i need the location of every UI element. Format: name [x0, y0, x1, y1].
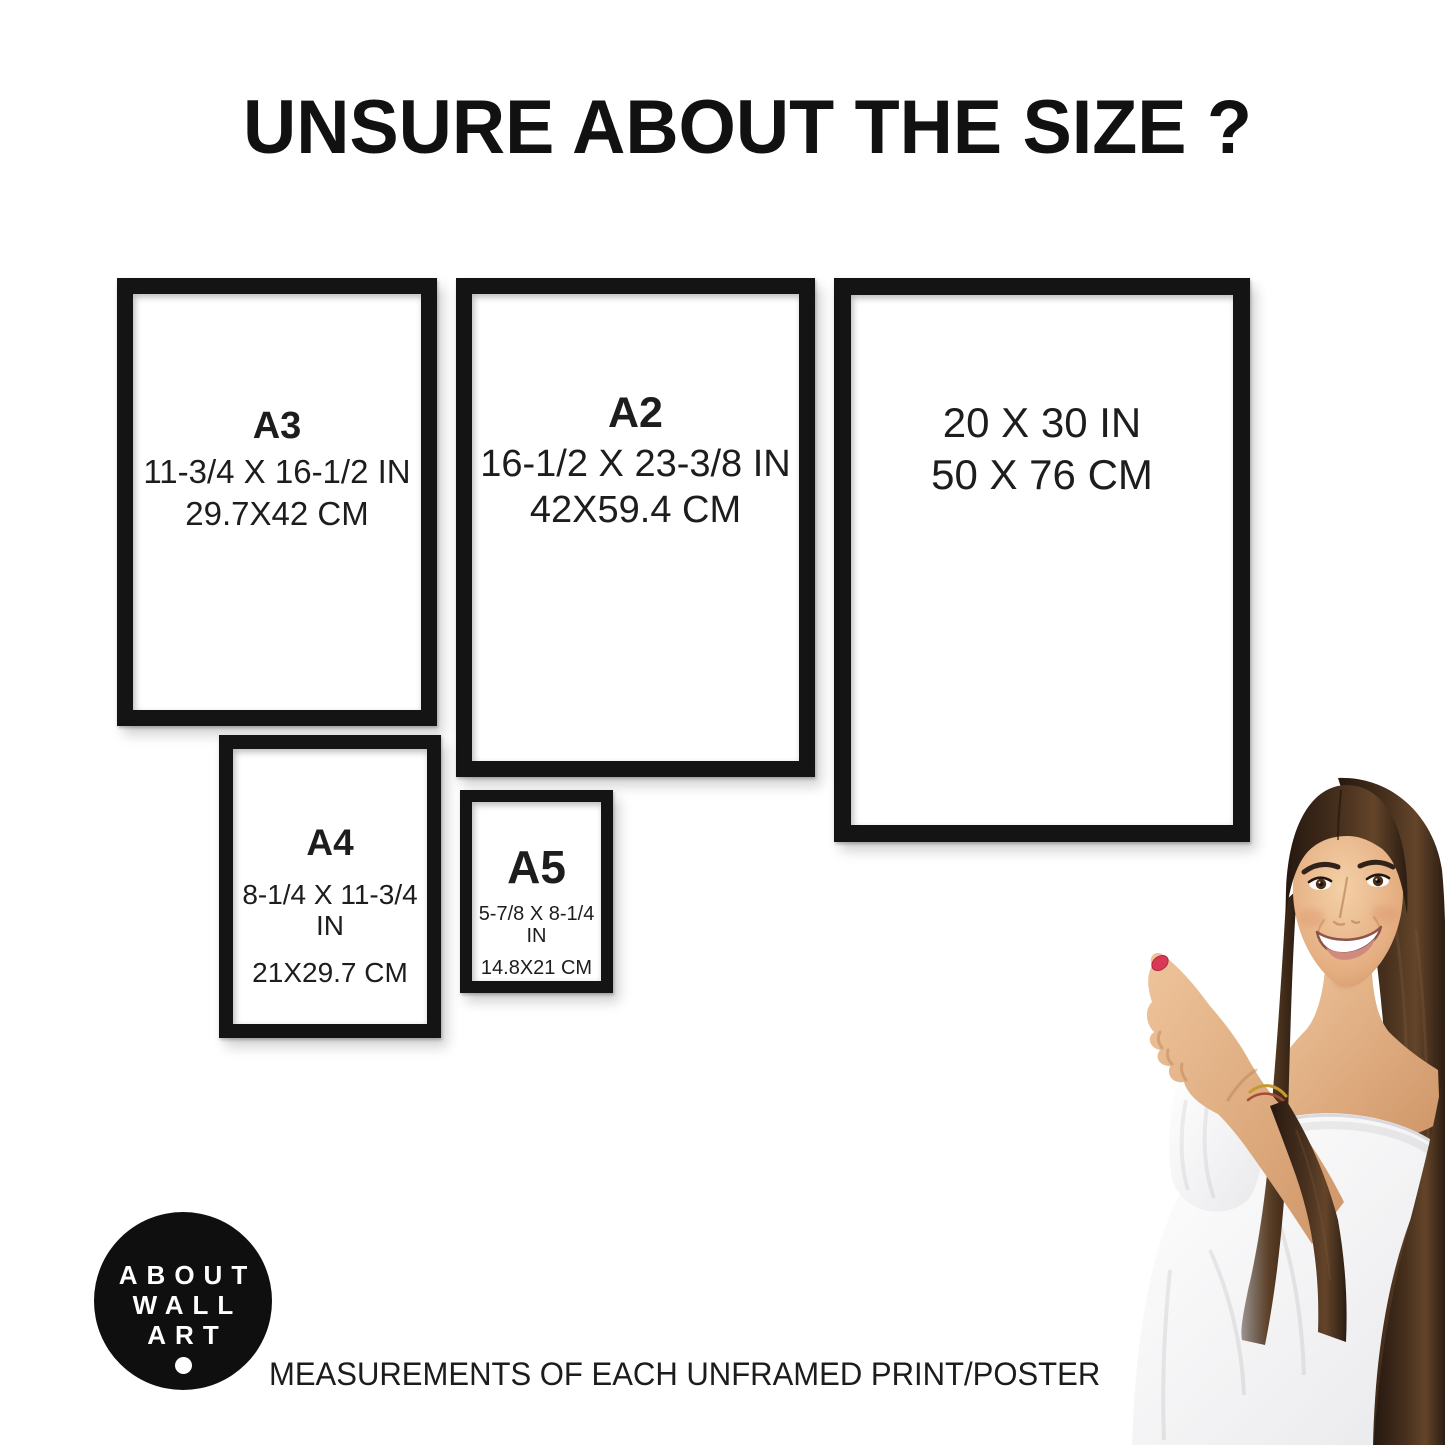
frame-a3-size-cm: 29.7X42 CM [143, 493, 410, 535]
frame-a2: A2 16-1/2 X 23-3/8 IN 42X59.4 CM [456, 278, 815, 777]
frame-a4: A4 8-1/4 X 11-3/4 IN 21X29.7 CM [219, 735, 441, 1038]
frame-20x30-size-cm: 50 X 76 CM [931, 449, 1153, 501]
frame-a2-label: A2 [480, 386, 791, 441]
frame-a4-size-in: 8-1/4 X 11-3/4 IN [233, 880, 427, 942]
logo-dot [175, 1357, 192, 1374]
frame-a2-mat: A2 16-1/2 X 23-3/8 IN 42X59.4 CM [472, 294, 799, 761]
size-guide-infographic: UNSURE ABOUT THE SIZE ? A3 11-3/4 X 16-1… [0, 0, 1445, 1445]
frame-a3-size-in: 11-3/4 X 16-1/2 IN [143, 451, 410, 493]
woman-pointing-photo [1090, 770, 1445, 1445]
frame-a2-size-cm: 42X59.4 CM [480, 487, 791, 533]
frame-a5-mat: A5 5-7/8 X 8-1/4 IN 14.8X21 CM [472, 802, 601, 981]
caption: MEASUREMENTS OF EACH UNFRAMED PRINT/POST… [269, 1356, 1045, 1393]
frame-a2-size-in: 16-1/2 X 23-3/8 IN [480, 441, 791, 487]
frame-a3-label: A3 [143, 402, 410, 451]
frame-a3: A3 11-3/4 X 16-1/2 IN 29.7X42 CM [117, 278, 437, 726]
frame-a3-mat: A3 11-3/4 X 16-1/2 IN 29.7X42 CM [133, 294, 421, 710]
frame-a4-size-cm: 21X29.7 CM [233, 958, 427, 989]
frame-a5: A5 5-7/8 X 8-1/4 IN 14.8X21 CM [460, 790, 613, 993]
frame-a4-mat: A4 8-1/4 X 11-3/4 IN 21X29.7 CM [233, 749, 427, 1024]
logo-line-1: ABOUT [110, 1260, 256, 1290]
page-title: UNSURE ABOUT THE SIZE ? [47, 84, 1445, 171]
frame-a5-size-in: 5-7/8 X 8-1/4 IN [472, 903, 601, 947]
frame-20x30-size-in: 20 X 30 IN [931, 397, 1153, 449]
logo-line-3: ART [138, 1320, 227, 1350]
frame-a5-label: A5 [472, 838, 601, 897]
frame-20x30-mat: 20 X 30 IN 50 X 76 CM [851, 295, 1233, 825]
frame-a4-label: A4 [233, 819, 427, 866]
frame-20x30: 20 X 30 IN 50 X 76 CM [834, 278, 1250, 842]
about-wall-art-logo: ABOUT WALL ART [94, 1212, 272, 1390]
frame-a5-size-cm: 14.8X21 CM [472, 957, 601, 979]
logo-line-2: WALL [124, 1290, 243, 1320]
